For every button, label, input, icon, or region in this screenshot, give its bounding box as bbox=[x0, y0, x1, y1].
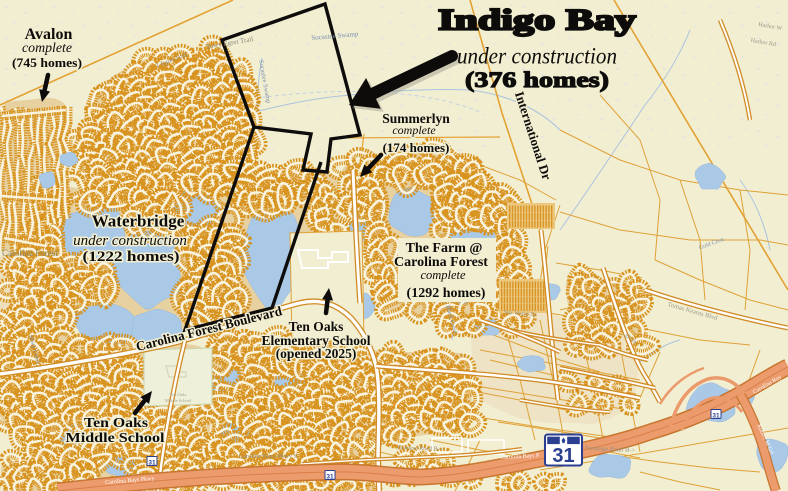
svg-text:Ten Oaks: Ten Oaks bbox=[84, 416, 149, 431]
svg-text:Middle School: Middle School bbox=[165, 398, 192, 403]
svg-text:31: 31 bbox=[148, 459, 156, 466]
svg-text:complete: complete bbox=[392, 123, 436, 137]
svg-text:Middle School: Middle School bbox=[66, 431, 165, 446]
svg-text:(745 homes): (745 homes) bbox=[12, 55, 82, 70]
svg-text:complete: complete bbox=[22, 40, 72, 55]
svg-text:under construction: under construction bbox=[457, 44, 617, 70]
svg-text:(1292 homes): (1292 homes) bbox=[407, 286, 486, 301]
svg-text:Indigo Bay: Indigo Bay bbox=[438, 4, 636, 37]
svg-text:(376 homes): (376 homes) bbox=[465, 67, 609, 92]
svg-text:31: 31 bbox=[552, 445, 574, 467]
svg-text:(174 homes): (174 homes) bbox=[383, 140, 450, 155]
svg-text:(1222 homes): (1222 homes) bbox=[83, 249, 180, 265]
svg-text:Caroline Bays Pkwy S: Caroline Bays Pkwy S bbox=[239, 453, 298, 460]
svg-text:31: 31 bbox=[326, 473, 334, 480]
svg-text:Ten Oaks: Ten Oaks bbox=[289, 319, 344, 334]
svg-text:Carolina Forest: Carolina Forest bbox=[2, 248, 58, 258]
svg-text:Ten Oaks: Ten Oaks bbox=[169, 392, 186, 397]
svg-text:under construction: under construction bbox=[73, 233, 187, 249]
svg-text:The Farm @: The Farm @ bbox=[406, 241, 483, 256]
svg-text:Waterbridge: Waterbridge bbox=[92, 212, 185, 231]
svg-text:(opened 2025): (opened 2025) bbox=[276, 346, 357, 361]
svg-text:complete: complete bbox=[420, 268, 466, 282]
svg-text:31: 31 bbox=[712, 412, 720, 419]
